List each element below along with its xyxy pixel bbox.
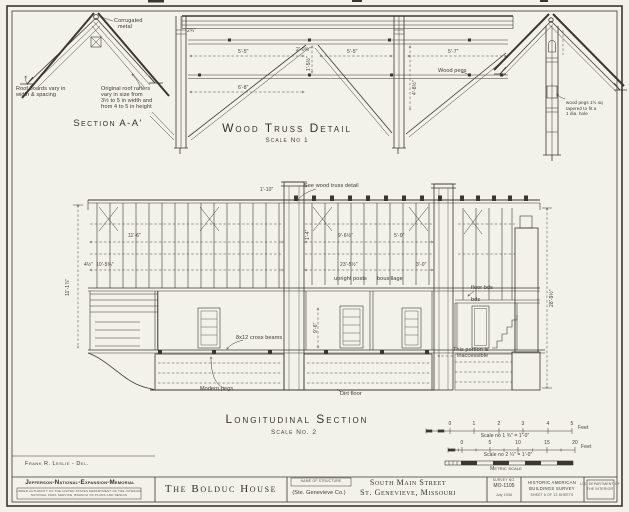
longitudinal-section-scale: Scale No. 2	[271, 429, 317, 436]
corner-note-2: THE INTERIOR	[587, 488, 613, 492]
scale2-tick-label: 20	[572, 441, 578, 447]
habs-line-2: BUILDINGS SURVEY	[529, 487, 575, 492]
dimension-label: 11'-6"	[128, 234, 141, 240]
dimension-label: 5'-5"	[347, 50, 357, 56]
scale2-tick-label: 10	[515, 441, 521, 447]
annotation-bousillage: bousillage	[377, 276, 403, 282]
county-label: (Ste. Genevieve Co.)	[292, 490, 345, 496]
scale2-tick-label: 5	[489, 441, 492, 447]
dimension-label: 10'-5¾"	[96, 263, 114, 269]
delineator-credit: Frank R. Leslie - Del.	[25, 461, 89, 467]
scale1-tick-label: 2	[498, 422, 501, 428]
annotation-wood-pegs: Wood pegs	[438, 68, 467, 74]
annotation-floor-boards: floor bds	[471, 285, 493, 291]
address-line-2: St. Genevieve, Missouri	[360, 489, 456, 498]
annotation-dirt-floor: Dirt floor	[340, 391, 362, 397]
scale2-tick-label: 0	[461, 441, 464, 447]
scale1-tick-label: 4	[547, 422, 550, 428]
dimension-label: 2'-0¾"	[296, 48, 311, 54]
annotation-inaccessible-2: inaccessible	[457, 353, 488, 359]
scale1-feet-label: Feet	[578, 426, 588, 432]
scale1-tick-label: 0	[449, 422, 452, 428]
name-of-structure-label: NAME OF STRUCTURE	[301, 480, 342, 484]
survey-number-label: SURVEY NO.	[493, 479, 516, 483]
wood-truss-title: Wood Truss Detail	[222, 122, 352, 135]
scale1-tick-label: 5	[571, 422, 574, 428]
dimension-label: 23'-5½"	[340, 263, 358, 269]
scale1-tick-label: 3	[522, 422, 525, 428]
annotation-rafters-4: from 4 to 5 in height	[101, 104, 152, 110]
annotation-modern-pegs: Modern pegs	[200, 386, 233, 392]
habs-line-1: HISTORIC AMERICAN	[528, 481, 576, 486]
dimension-label: 2¾"	[187, 29, 196, 35]
structure-name: The Bolduc House	[165, 483, 277, 495]
scale2-caption: Scale no 2 ¼" = 1'-0"	[484, 453, 533, 459]
dimension-label: 5'-7"	[448, 50, 458, 56]
annotation-corrugated-metal-2: metal	[118, 24, 132, 30]
scale2-tick-label: 15	[544, 441, 550, 447]
dimension-label: 6'-8"	[238, 86, 248, 92]
scale2-feet-label: Feet	[581, 445, 591, 451]
annotation-cross-beams: 8x12 cross beams	[236, 335, 282, 341]
section-aa-title: Section A-A'	[73, 119, 142, 130]
dimension-label: 3'-0"	[416, 263, 426, 269]
habs-drawing-sheet: Corrugated metal Roof boards vary in wid…	[0, 0, 629, 512]
annotation-boards: bds	[471, 297, 480, 303]
annotation-see-truss: See wood truss detail	[304, 183, 359, 189]
annotation-gable-peg-3: 1 dia. hole	[566, 111, 588, 116]
dimension-label: 1'-5½"	[307, 56, 313, 71]
longitudinal-section-title: Longitudinal Section	[226, 413, 369, 426]
dimension-label: 1'-4"	[306, 230, 312, 240]
titleblock-agency: Jefferson-National-Expansion-Memorial	[25, 479, 134, 486]
dimension-label: 5'-5"	[238, 50, 248, 56]
survey-date: July 1936	[496, 494, 512, 498]
dimension-label: 11'-1⅞"	[66, 279, 72, 296]
dimension-label: 4½"	[84, 263, 93, 269]
annotation-gable-peg-1: wood pegs 1½ sq	[566, 100, 603, 105]
metric-scale-caption: Metric scale	[490, 467, 522, 473]
annotation-roof-boards-2: width & spacing	[16, 92, 56, 98]
dimension-label: 9'-6½"	[338, 234, 353, 240]
dimension-label: 5'-0"	[394, 234, 404, 240]
titleblock-agency-fineprint-2: NATIONAL PARK SERVICE, BRANCH OF PLANS A…	[31, 494, 128, 497]
scale1-tick-label: 1	[473, 422, 476, 428]
scale1-caption: Scale no 1 ¾" = 1'-0"	[481, 434, 530, 440]
wood-truss-scale: Scale No 1	[265, 137, 308, 144]
dimension-label: 4'-8½"	[413, 80, 419, 95]
dimension-label: 9'-6"	[314, 323, 320, 333]
dimension-label: 28'-9½"	[550, 289, 556, 307]
annotation-gable-peg-2: tapered to fit a	[566, 106, 596, 111]
annotation-upright-posts: upright posts	[334, 276, 367, 282]
habs-sheet-count: SHEET 6 OF 13 SHEETS	[531, 494, 574, 498]
dimension-label: 1'-10"	[260, 188, 273, 194]
survey-number: MO-1105	[493, 484, 514, 490]
